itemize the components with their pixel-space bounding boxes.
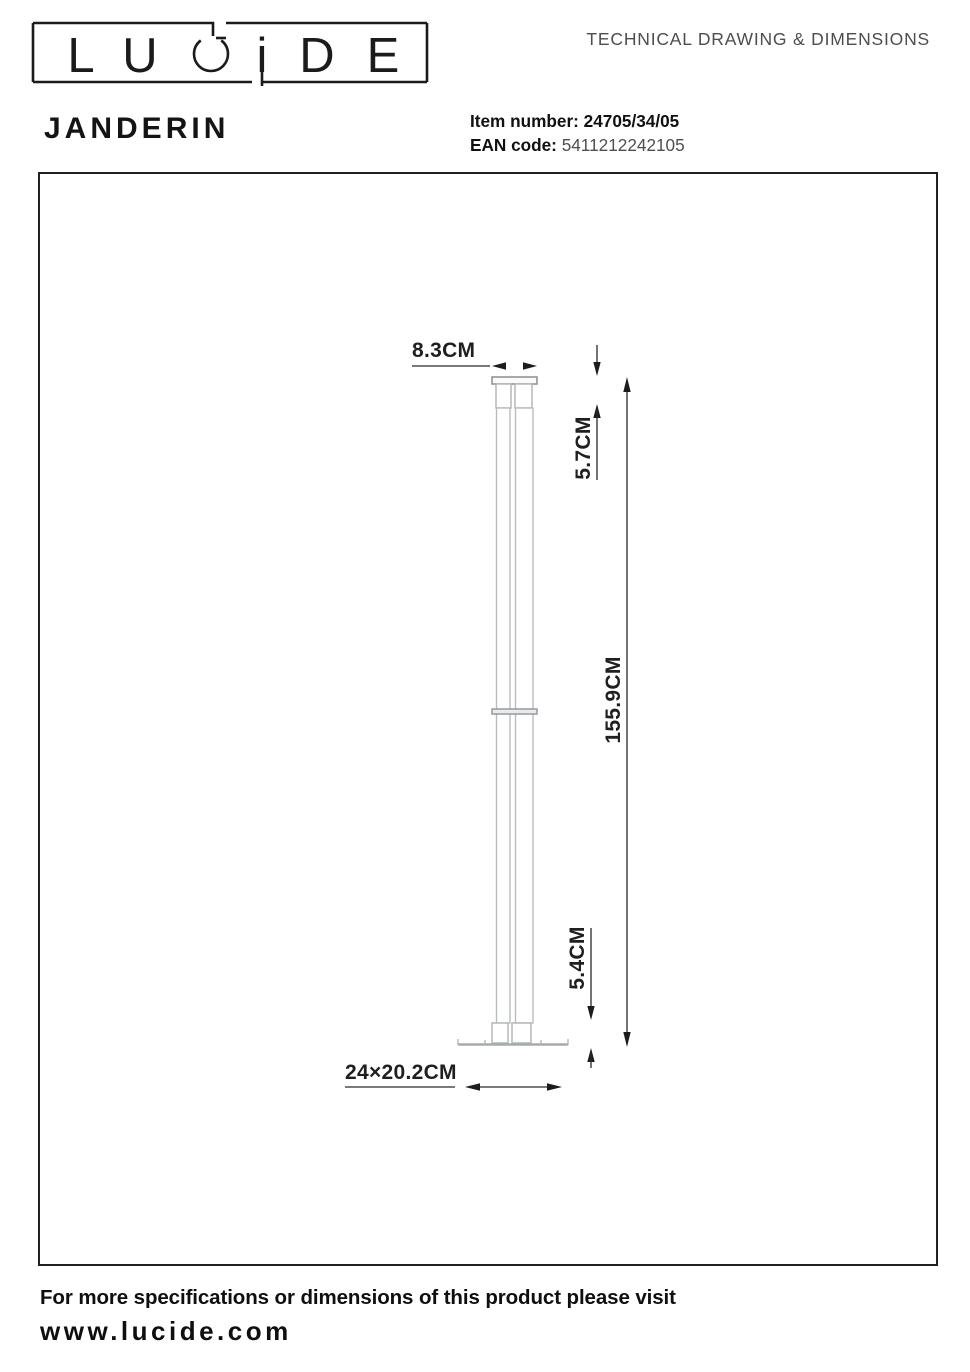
lamp-left-socket: [496, 384, 511, 408]
arrow-left-icon: [492, 362, 506, 370]
dim-label-total-height: 155.9CM: [602, 656, 625, 743]
doc-title: TECHNICAL DRAWING & DIMENSIONS: [586, 29, 930, 50]
arrow-right-icon: [547, 1083, 562, 1091]
lamp-right-tube: [516, 408, 534, 1023]
lamp-left-foot: [492, 1023, 508, 1043]
ean-label: EAN code:: [470, 135, 557, 155]
lamp-left-tube: [497, 408, 511, 1023]
lamp-right-foot: [512, 1023, 531, 1043]
item-number-value: 24705/34/05: [584, 111, 680, 131]
arrow-right-icon: [523, 362, 537, 370]
drawing-border: [39, 173, 937, 1265]
arrow-up-icon: [623, 377, 630, 392]
logo-letter-i: i: [257, 29, 268, 83]
item-info: Item number: 24705/34/05 EAN code: 54112…: [470, 110, 685, 157]
arrow-down-icon: [593, 362, 600, 376]
dim-total-height: 155.9CM: [602, 377, 631, 1047]
ean-value: 5411212242105: [562, 135, 685, 155]
arrow-left-icon: [465, 1083, 480, 1091]
product-name: JANDERIN: [44, 112, 229, 146]
footer-note: For more specifications or dimensions of…: [40, 1286, 676, 1310]
logo-letter-c-shape: [194, 37, 228, 71]
item-number-label: Item number:: [470, 111, 579, 131]
lamp-right-socket: [515, 384, 532, 408]
dim-base-height: 5.4CM: [566, 926, 595, 1068]
arrow-down-icon: [623, 1032, 630, 1047]
logo-letter-u: U: [122, 29, 157, 83]
technical-drawing: 8.3CM 5.7CM 155.9CM: [38, 172, 938, 1266]
lucide-logo: L U i D E: [30, 5, 440, 100]
dim-label-head-height: 5.7CM: [572, 416, 595, 479]
logo-letter-l: L: [67, 29, 94, 83]
technical-sheet: L U i D E TECHNICAL DRAWING & DIMENSIONS…: [0, 0, 970, 1372]
ean-row: EAN code: 5411212242105: [470, 134, 685, 158]
dimension-annotations: 8.3CM 5.7CM 155.9CM: [345, 339, 631, 1091]
arrow-down-icon: [587, 1006, 594, 1020]
dim-label-base-footprint: 24×20.2CM: [345, 1061, 457, 1084]
lamp-drawing: [458, 377, 568, 1045]
dim-base-footprint: 24×20.2CM: [345, 1061, 562, 1091]
lamp-top-cap: [492, 377, 537, 384]
item-number-row: Item number: 24705/34/05: [470, 110, 685, 134]
logo-letter-d: D: [299, 29, 334, 83]
website-link[interactable]: www.lucide.com: [40, 1316, 292, 1347]
dim-label-head-width: 8.3CM: [412, 339, 475, 362]
logo-letter-e: E: [367, 29, 400, 83]
dim-head-height: 5.7CM: [572, 345, 601, 480]
dim-head-width: 8.3CM: [412, 339, 537, 370]
dim-label-base-height: 5.4CM: [566, 926, 589, 989]
lamp-mid-collar: [492, 709, 537, 714]
